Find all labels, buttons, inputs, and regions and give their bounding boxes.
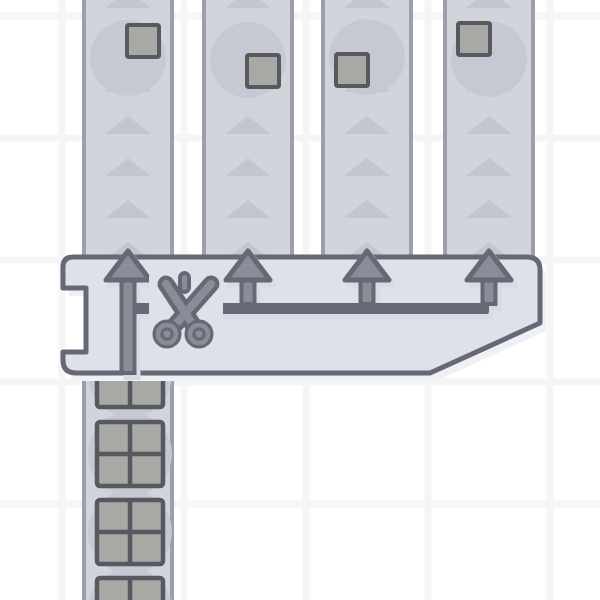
- shape-item-quarter-bottom-right: [210, 22, 286, 98]
- game-canvas[interactable]: [0, 0, 600, 600]
- belt-edge-left: [82, 0, 86, 260]
- shape-item-quarter-bottom-left: [329, 19, 405, 95]
- grid-line-vertical: [59, 0, 66, 600]
- shape-item-full-square: [88, 490, 172, 574]
- belt-edge-right: [531, 0, 535, 260]
- shape-item-quarter-top-right: [90, 20, 166, 96]
- scissors-rivet: [180, 273, 189, 292]
- belt-edge-right: [170, 368, 174, 600]
- grid-line-vertical: [547, 0, 554, 600]
- belt-edge-left: [443, 0, 447, 260]
- belt-edge-right: [170, 0, 174, 260]
- belt-edge-left: [82, 368, 86, 600]
- belt-edge-left: [202, 0, 206, 260]
- belt-edge-right: [290, 0, 294, 260]
- belt-edge-left: [321, 0, 325, 260]
- scissors-icon: [149, 267, 223, 353]
- output-shaft: [122, 276, 135, 373]
- quarter-square-shape: [127, 25, 159, 57]
- shape-item-full-square: [88, 412, 172, 496]
- quarter-square-shape: [336, 54, 368, 86]
- shape-item-quarter-top-left: [451, 21, 527, 97]
- game-viewport[interactable]: [0, 0, 600, 600]
- belt-edge-right: [409, 0, 413, 260]
- quarter-square-shape: [458, 23, 490, 55]
- quarter-square-shape: [247, 55, 279, 87]
